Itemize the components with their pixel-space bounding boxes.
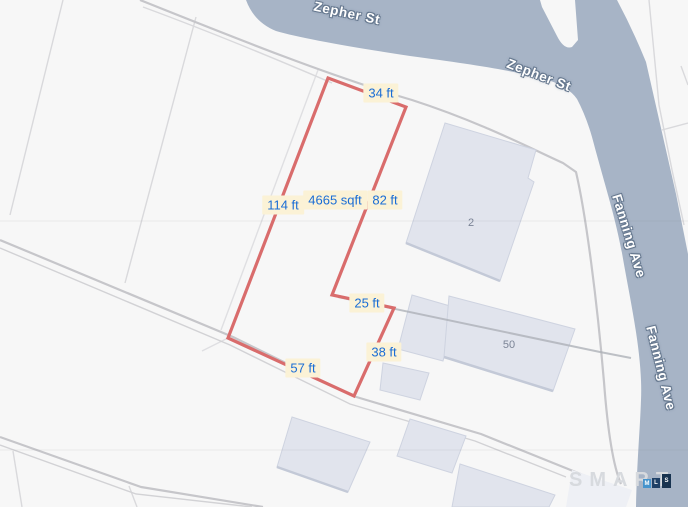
map-canvas[interactable] [0, 0, 688, 507]
watermark-block-m: M [643, 479, 651, 488]
watermark-block-l: L [652, 478, 660, 488]
watermark-block-s: S [662, 474, 671, 488]
